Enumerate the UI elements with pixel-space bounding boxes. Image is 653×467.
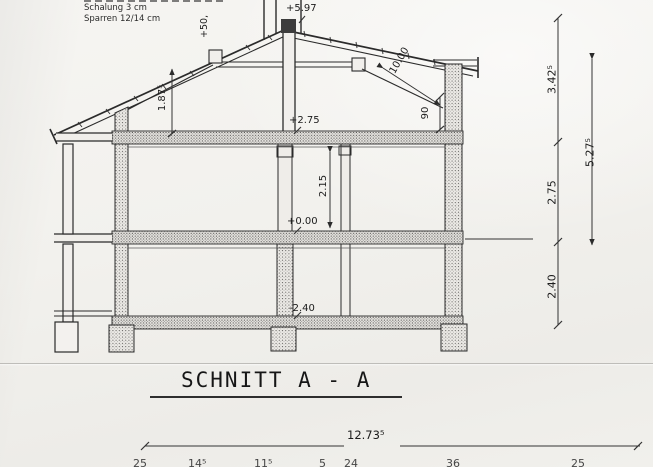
bottom-segment-1: 14⁵ (188, 457, 206, 467)
bottom-segment-2: 11⁵ (254, 457, 272, 467)
attic-storey-dim-label: 3.42⁵ (547, 57, 558, 103)
total-width-dim-label: 12.73⁵ (347, 430, 385, 442)
attic-height-dim-label: 1.87⁵ (158, 78, 168, 118)
annex-roof-slab-fill (56, 133, 112, 141)
section-title: SCHNITT A - A (181, 368, 371, 392)
interior-wall-gf-2 (341, 144, 350, 232)
left-rafter-inner (57, 36, 285, 141)
left-wall-footing (109, 325, 134, 352)
upper-floor-slab (112, 131, 463, 144)
left-annex (54, 133, 112, 352)
chimney-footing (271, 327, 296, 351)
upper-level-label: +2.75 (289, 116, 320, 126)
note-schalung: Schalung 3 cm (84, 3, 160, 14)
paper-fold-highlight (0, 364, 653, 366)
left-purlin-post (209, 50, 222, 63)
scanned-section-drawing: Schalung 3 cm Sparren 12/14 cm +50, +5.9… (0, 0, 653, 467)
ground-floor-slab (112, 231, 463, 244)
right-roof-batten-ticks (304, 31, 461, 70)
knee-wall-dim-label: 90 (421, 101, 431, 125)
bottom-segment-0: 25 (133, 457, 147, 467)
roof-notes: Schalung 3 cm Sparren 12/14 cm (84, 3, 160, 24)
bottom-segment-3: 5 (319, 457, 326, 467)
ridge-purlin (281, 19, 296, 33)
basement-storey-dim-label: 2.40 (547, 268, 558, 306)
left-rafter-outer (54, 30, 284, 135)
bottom-segment-4: 24 (344, 457, 358, 467)
ground-storey-dim-label: 2.75 (547, 174, 558, 212)
right-exterior-wall (445, 64, 462, 331)
interior-wall-bs-2 (341, 244, 350, 316)
room-height-dim-label: 2.15 (319, 169, 329, 203)
annex-footing (55, 322, 78, 352)
left-eave-fascia (50, 129, 57, 144)
annex-post-upper (63, 144, 73, 234)
bottom-segment-6: 25 (571, 457, 585, 467)
annex-post-lower (63, 244, 73, 322)
right-wall-footing (441, 324, 467, 351)
annex-floor-fill (54, 234, 112, 242)
left-strut (127, 65, 213, 110)
note-sparren: Sparren 12/14 cm (84, 14, 160, 25)
bottom-segment-5: 36 (446, 457, 460, 467)
section-title-underline (150, 396, 402, 398)
ground-level-label: +0.00 (287, 217, 318, 227)
basement-level-label: -2.40 (289, 304, 315, 314)
inner-span-dim-label: 5.27⁵ (585, 130, 596, 176)
chimney-level-label: +50, (199, 0, 210, 38)
ridge-level-label: +5.97 (286, 4, 317, 14)
